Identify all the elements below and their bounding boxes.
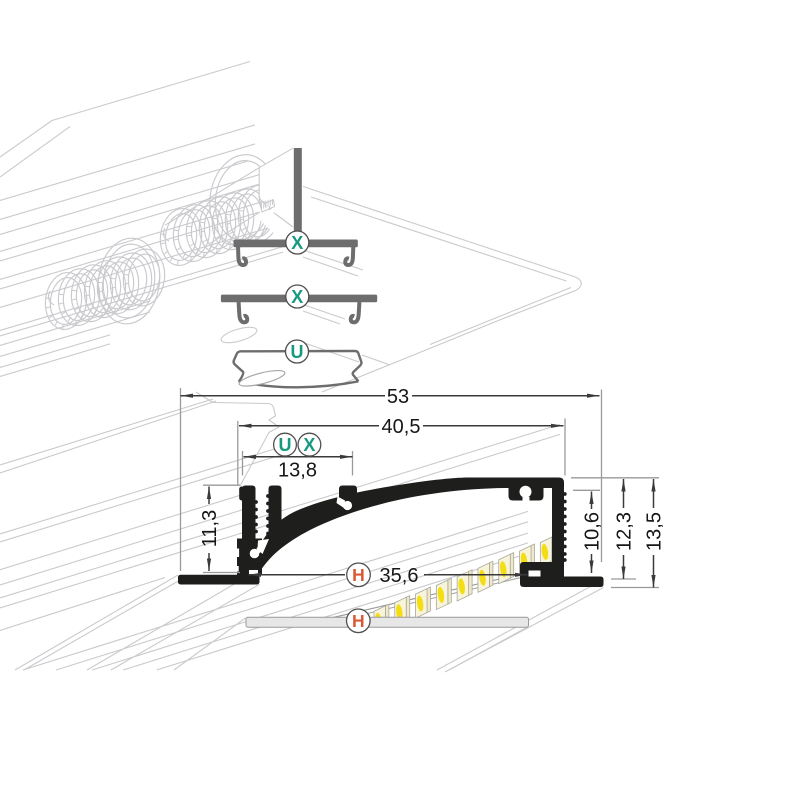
svg-text:53: 53 (387, 386, 409, 408)
svg-text:X: X (291, 233, 303, 253)
svg-text:40,5: 40,5 (382, 416, 421, 438)
svg-text:35,6: 35,6 (380, 565, 419, 587)
svg-text:X: X (291, 287, 303, 307)
svg-text:12,3: 12,3 (614, 512, 636, 551)
svg-text:11,3: 11,3 (199, 510, 221, 547)
svg-text:U: U (279, 435, 292, 455)
svg-text:H: H (352, 565, 365, 585)
svg-text:13,8: 13,8 (278, 460, 317, 482)
svg-text:13,5: 13,5 (644, 512, 666, 551)
svg-text:H: H (352, 611, 365, 631)
svg-text:U: U (291, 342, 304, 362)
svg-text:X: X (303, 435, 315, 455)
svg-text:10,6: 10,6 (582, 512, 604, 551)
